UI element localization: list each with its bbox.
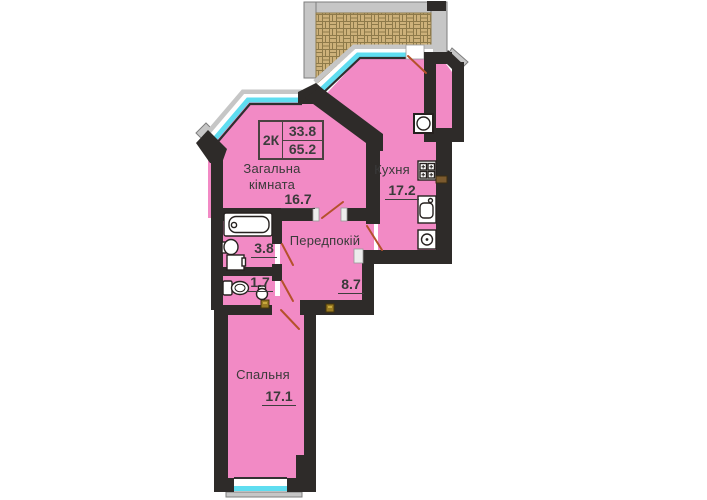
living-area-total: 33.8	[283, 122, 322, 141]
balcony-corner-block	[427, 1, 446, 11]
floor-plan-drawing	[0, 0, 707, 500]
wall-left	[211, 150, 223, 310]
door-jamb	[313, 208, 319, 221]
wall-bath-right-upper	[272, 208, 282, 244]
floor-plan-page: 2К 33.8 65.2 Загальна кімната 16.7 Кухня…	[0, 0, 707, 500]
bedroom-label: Спальня	[233, 367, 293, 383]
washbasin-icon	[222, 240, 238, 255]
living-room-area: 16.7	[278, 191, 318, 209]
wall-bedroom-right	[304, 311, 316, 478]
balcony-wall-top	[304, 2, 447, 13]
hall-label: Передпокій	[287, 233, 363, 249]
stove-icon	[418, 161, 436, 180]
apartment-type-label: 2К	[260, 122, 283, 158]
door-hinge-marker	[261, 300, 269, 308]
bedroom-window-frame	[234, 479, 287, 486]
wall-bedroom-bottom-right	[287, 478, 316, 492]
total-area: 65.2	[283, 141, 322, 159]
kitchen-label: Кухня	[364, 162, 420, 178]
bedroom-area: 17.1	[260, 388, 298, 406]
hall-area: 8.7	[334, 276, 368, 294]
door-jamb	[354, 249, 363, 263]
living-room-label: Загальна кімната	[232, 161, 312, 193]
kitchen-wall-box	[436, 176, 447, 183]
vent-shaft-icon	[414, 114, 433, 133]
bedroom-window-inner-line	[234, 477, 287, 479]
kitchen-area: 17.2	[382, 182, 422, 200]
washer-icon	[227, 255, 246, 270]
bathtub-icon	[224, 213, 272, 236]
kitchen-washer-icon	[418, 230, 436, 249]
kitchen-sink-icon	[418, 196, 436, 223]
kitchen-niche-floor	[436, 64, 452, 128]
wall-kitchen-left	[366, 136, 380, 224]
wc-area: 1.7	[243, 274, 277, 292]
balcony-wall-left	[304, 2, 316, 78]
bathroom-area: 3.8	[247, 240, 281, 258]
door-jamb	[341, 208, 347, 221]
bedroom-window-glass	[234, 486, 287, 491]
bedroom-window-sill	[226, 492, 302, 497]
entrance-door-marker	[326, 304, 334, 312]
wall-kitchen-right	[436, 142, 452, 264]
apartment-summary-table: 2К 33.8 65.2	[258, 120, 324, 160]
wall-bedroom-bottom-left	[214, 478, 234, 492]
wall-bedroom-left	[214, 307, 228, 492]
summary-values: 33.8 65.2	[283, 122, 322, 158]
